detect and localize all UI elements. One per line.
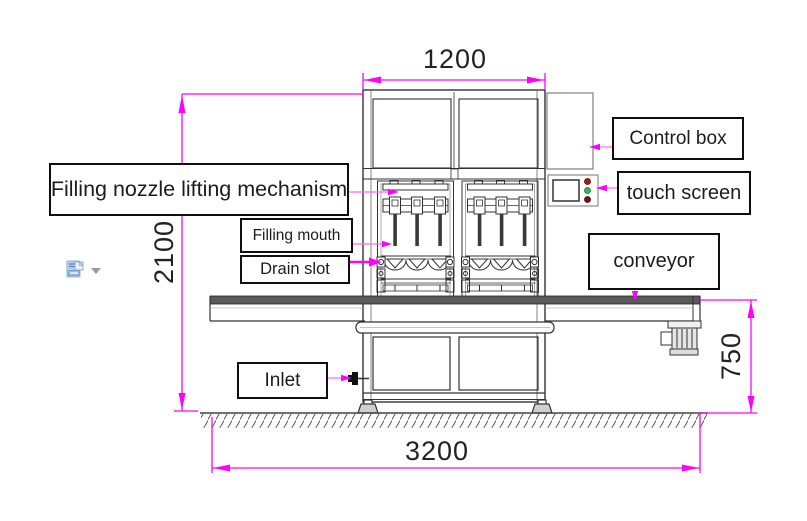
machine-lower-cabinet: [356, 322, 554, 413]
inlet-fitting-drawing: [348, 372, 369, 385]
label-filling-mouth: Filling mouth: [240, 218, 353, 253]
dimension-total-length: 3200: [377, 436, 497, 466]
dimension-conveyor-height: 750: [716, 296, 746, 416]
button-green-icon: [585, 188, 591, 194]
label-filling-nozzle-lifting-mechanism: Filling nozzle lifting mechanism: [49, 163, 349, 216]
ground-hatching: [200, 413, 708, 428]
filling-head-right-door: [462, 181, 539, 304]
label-control-box: Control box: [612, 117, 744, 160]
conveyor-drawing: [210, 296, 700, 321]
label-inlet: Inlet: [237, 362, 328, 399]
conveyor-motor-drawing: [661, 321, 701, 355]
label-drain-slot: Drain slot: [240, 255, 350, 284]
filling-head-left-door: [377, 181, 454, 304]
diagram-canvas: Filling nozzle lifting mechanism Filling…: [0, 0, 807, 521]
chevron-down-icon[interactable]: [91, 268, 101, 274]
label-conveyor: conveyor: [588, 233, 720, 290]
paste-options-control[interactable]: [66, 257, 110, 283]
control-box-drawing: [547, 93, 593, 169]
label-touch-screen: touch screen: [617, 171, 751, 215]
touch-screen-drawing: [548, 175, 598, 206]
button-red-icon: [585, 179, 591, 185]
dimension-machine-width: 1200: [395, 44, 515, 74]
button-darkred-icon: [585, 197, 591, 203]
document-paste-icon[interactable]: [66, 260, 86, 280]
